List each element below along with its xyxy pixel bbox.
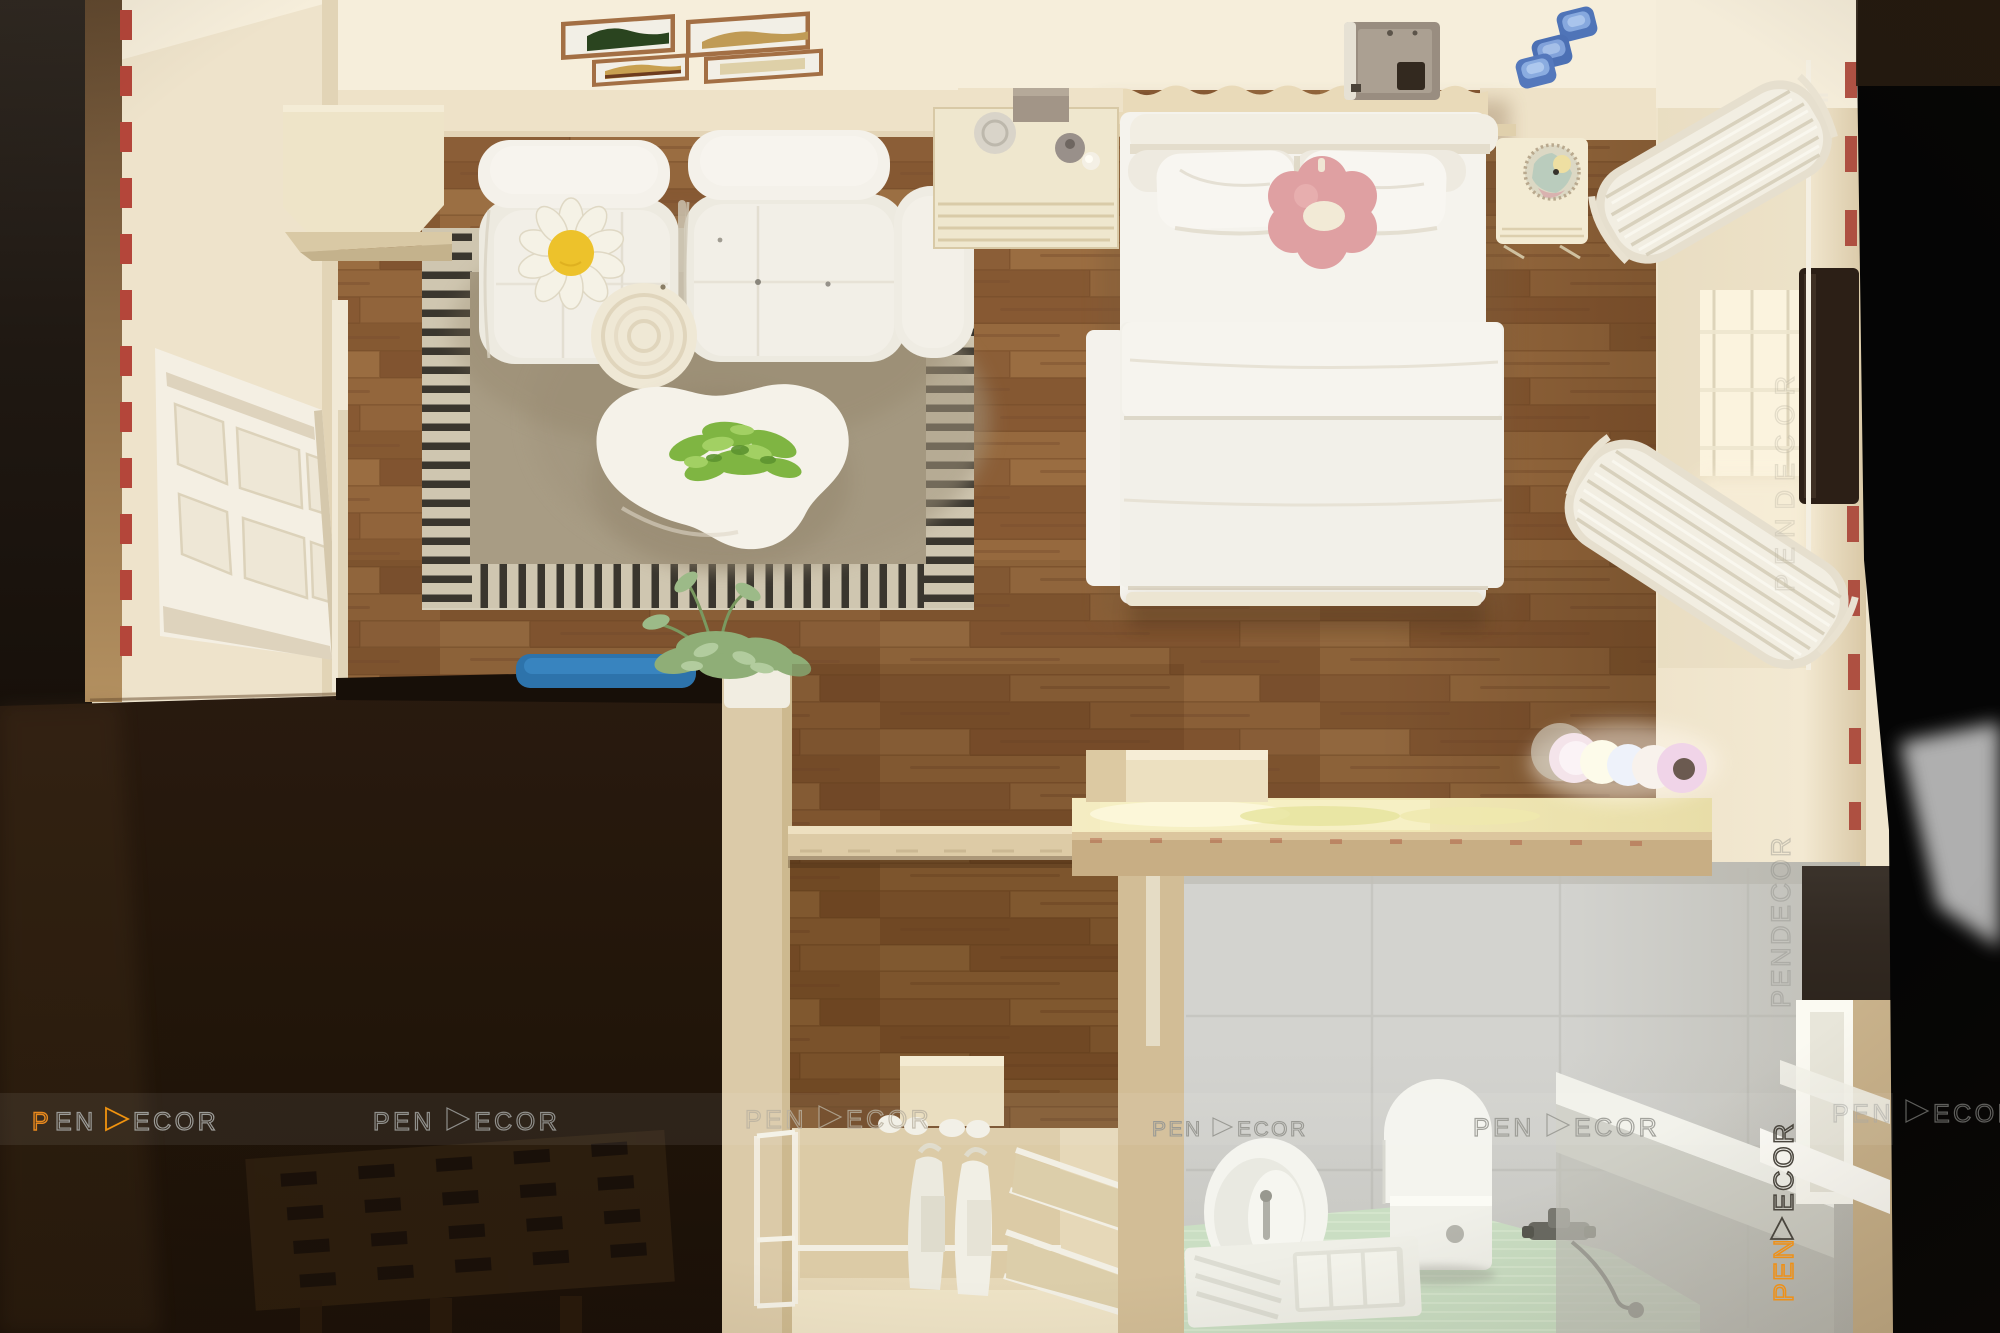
svg-text:PEN: PEN <box>1473 1114 1535 1142</box>
svg-text:EN: EN <box>55 1108 97 1136</box>
svg-text:ECOR: ECOR <box>133 1108 219 1136</box>
svg-text:PENDECOR: PENDECOR <box>1770 367 1800 592</box>
svg-text:ECOR: ECOR <box>1768 1121 1799 1212</box>
svg-text:PEN: PEN <box>745 1106 807 1134</box>
svg-text:PEN: PEN <box>1152 1118 1203 1141</box>
svg-text:ECOR: ECOR <box>1237 1118 1308 1141</box>
svg-text:PEN: PEN <box>1832 1100 1894 1128</box>
svg-text:ECOR: ECOR <box>846 1106 932 1134</box>
svg-text:ECOR: ECOR <box>1574 1114 1660 1142</box>
svg-text:PEN: PEN <box>1768 1237 1799 1302</box>
svg-text:ECOR: ECOR <box>474 1108 560 1136</box>
svg-text:P: P <box>32 1108 52 1136</box>
svg-text:ECOR: ECOR <box>1933 1100 2000 1128</box>
svg-text:PENDECOR: PENDECOR <box>1766 835 1796 1008</box>
svg-text:PEN: PEN <box>373 1108 435 1136</box>
